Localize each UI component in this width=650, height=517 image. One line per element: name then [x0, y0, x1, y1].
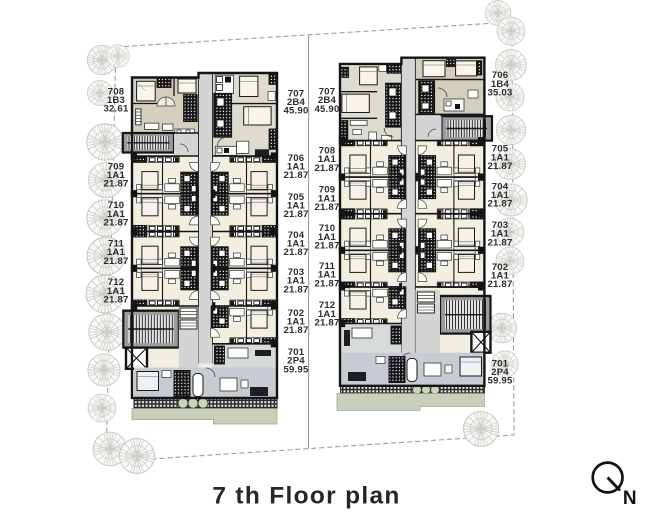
svg-text:21.87: 21.87 [283, 247, 308, 258]
svg-text:21.87: 21.87 [103, 294, 128, 305]
svg-text:21.87: 21.87 [314, 202, 339, 213]
svg-text:21.87: 21.87 [283, 209, 308, 220]
svg-text:21.87: 21.87 [487, 279, 512, 290]
svg-text:21.87: 21.87 [103, 256, 128, 267]
svg-text:59.95: 59.95 [487, 376, 512, 387]
svg-text:21.87: 21.87 [314, 317, 339, 328]
svg-text:21.87: 21.87 [314, 278, 339, 289]
svg-text:N: N [623, 488, 637, 509]
svg-text:21.87: 21.87 [283, 325, 308, 336]
svg-text:21.87: 21.87 [283, 284, 308, 295]
svg-text:21.87: 21.87 [487, 161, 512, 172]
svg-text:21.87: 21.87 [314, 240, 339, 251]
svg-text:59.95: 59.95 [283, 364, 308, 375]
svg-text:21.87: 21.87 [487, 237, 512, 248]
svg-text:32.61: 32.61 [103, 104, 128, 115]
svg-text:21.87: 21.87 [487, 199, 512, 210]
svg-text:21.87: 21.87 [314, 163, 339, 174]
svg-text:35.03: 35.03 [487, 87, 512, 98]
svg-text:45.90: 45.90 [283, 106, 308, 117]
svg-text:21.87: 21.87 [103, 179, 128, 190]
svg-text:21.87: 21.87 [103, 217, 128, 228]
svg-text:45.90: 45.90 [314, 104, 339, 115]
svg-text:7 th Floor plan: 7 th Floor plan [212, 483, 400, 510]
svg-text:21.87: 21.87 [283, 170, 308, 181]
